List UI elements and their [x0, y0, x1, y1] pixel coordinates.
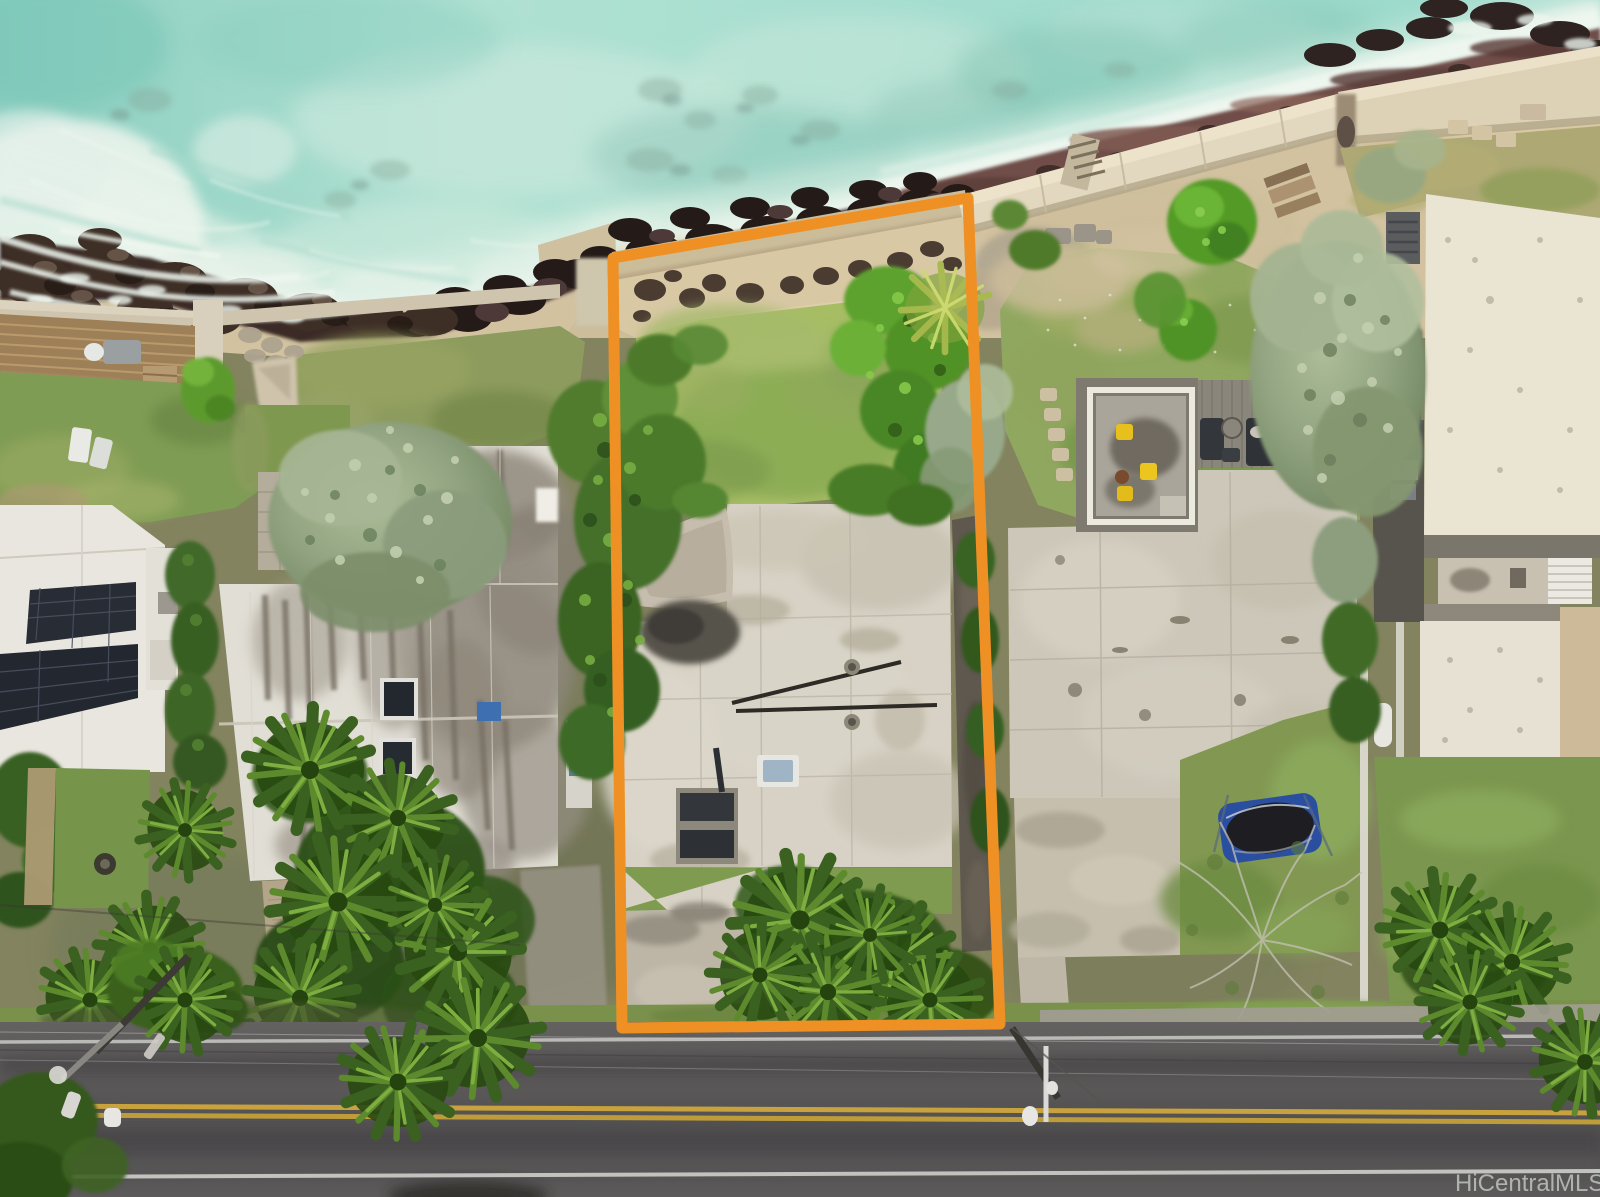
svg-text:HiCentralMLS: HiCentralMLS: [1455, 1170, 1600, 1197]
